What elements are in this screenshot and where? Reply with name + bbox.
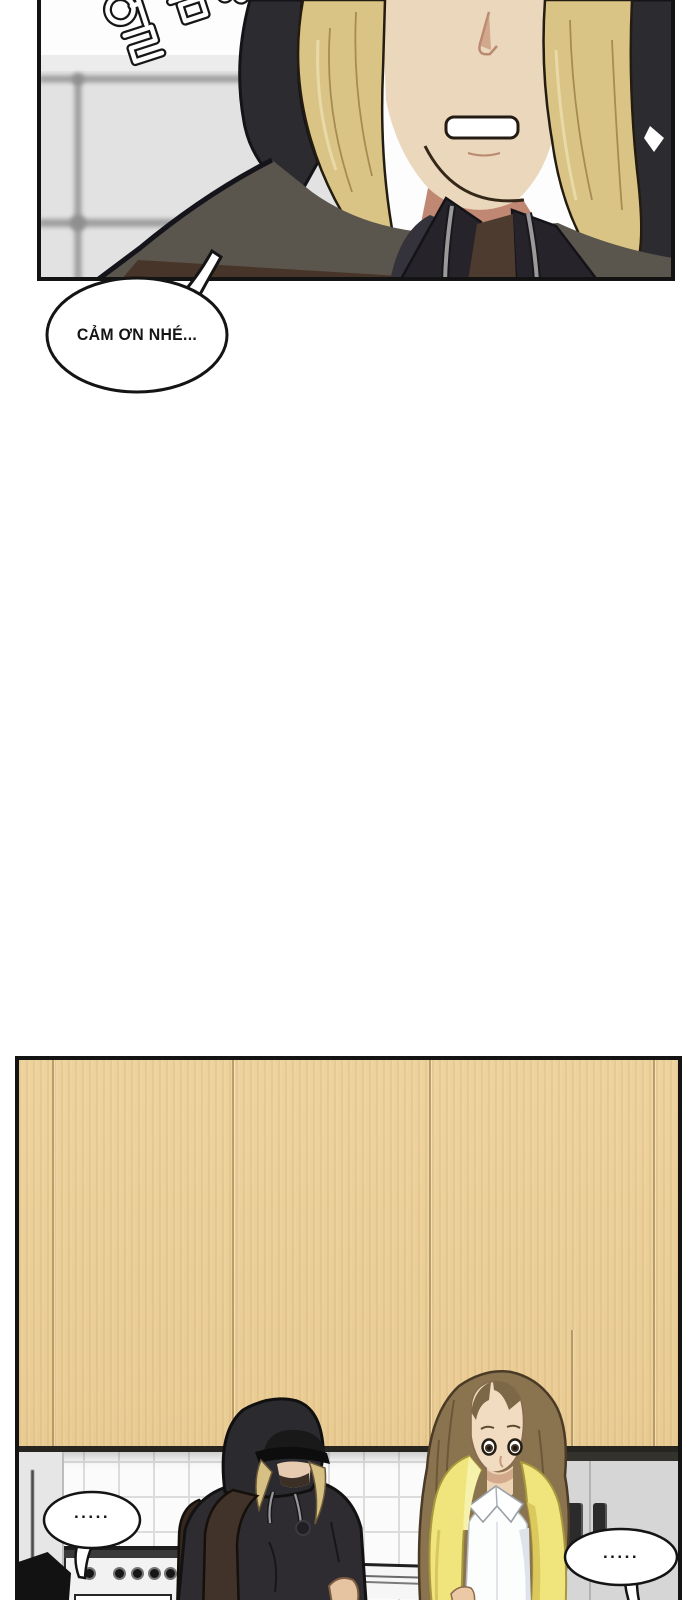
webtoon-page: 얼음..: [0, 0, 690, 1600]
chest-logo: [296, 1521, 310, 1535]
speech-bubble-left: [33, 1484, 153, 1588]
panel-2: ..... .....: [15, 1056, 682, 1600]
speech-bubble: [40, 243, 240, 401]
hand: [329, 1578, 358, 1600]
speech-bubble-right-text: .....: [565, 1544, 677, 1561]
gritted-mouth: [446, 117, 518, 138]
speech-bubble-text: CẢM ƠN NHÉ...: [55, 326, 218, 345]
woman-character: [419, 1371, 569, 1600]
white-shirt: [465, 1503, 531, 1600]
speech-bubble-right: [559, 1526, 682, 1600]
speech-bubble-left-text: .....: [44, 1504, 140, 1521]
hooded-character: [177, 1399, 367, 1600]
